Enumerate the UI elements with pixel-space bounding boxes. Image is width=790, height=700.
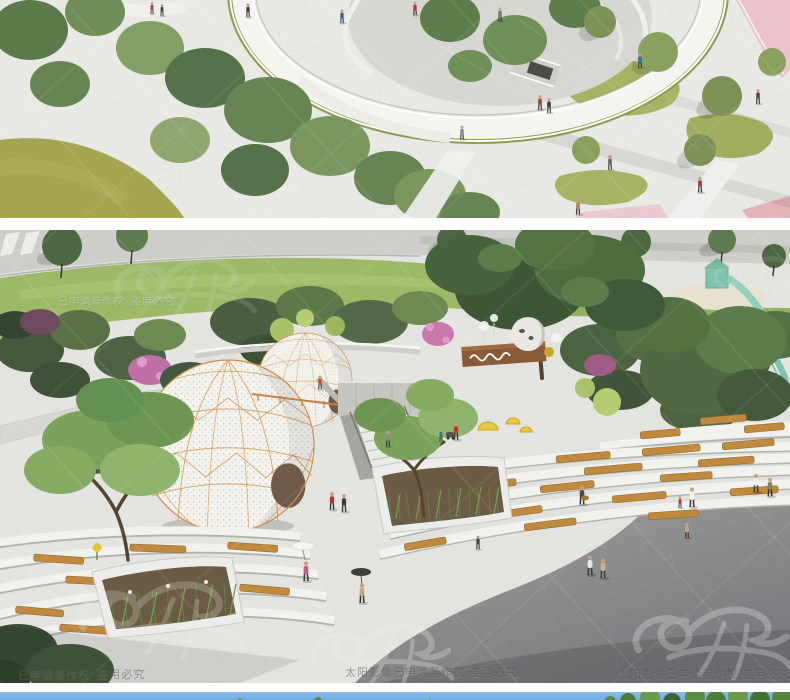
render-next-sliver	[0, 692, 790, 700]
page-scroll-view: '已申请著作权' 盗用必究 '已申请著作权' 盗用必究 太阳影像已申请著作权 盗…	[0, 0, 790, 700]
big-dome	[142, 360, 314, 532]
plaza-domes-scene	[0, 230, 790, 683]
aerial-park-scene	[0, 0, 790, 218]
image-gap	[0, 218, 790, 230]
left-planter	[92, 557, 244, 638]
render-plaza-domes: '已申请著作权' 盗用必究 '已申请著作权' 盗用必究 太阳影像已申请著作权 盗…	[0, 230, 790, 683]
render-aerial-park	[0, 0, 790, 218]
image-gap	[0, 683, 790, 692]
sky-sliver-scene	[0, 692, 790, 700]
